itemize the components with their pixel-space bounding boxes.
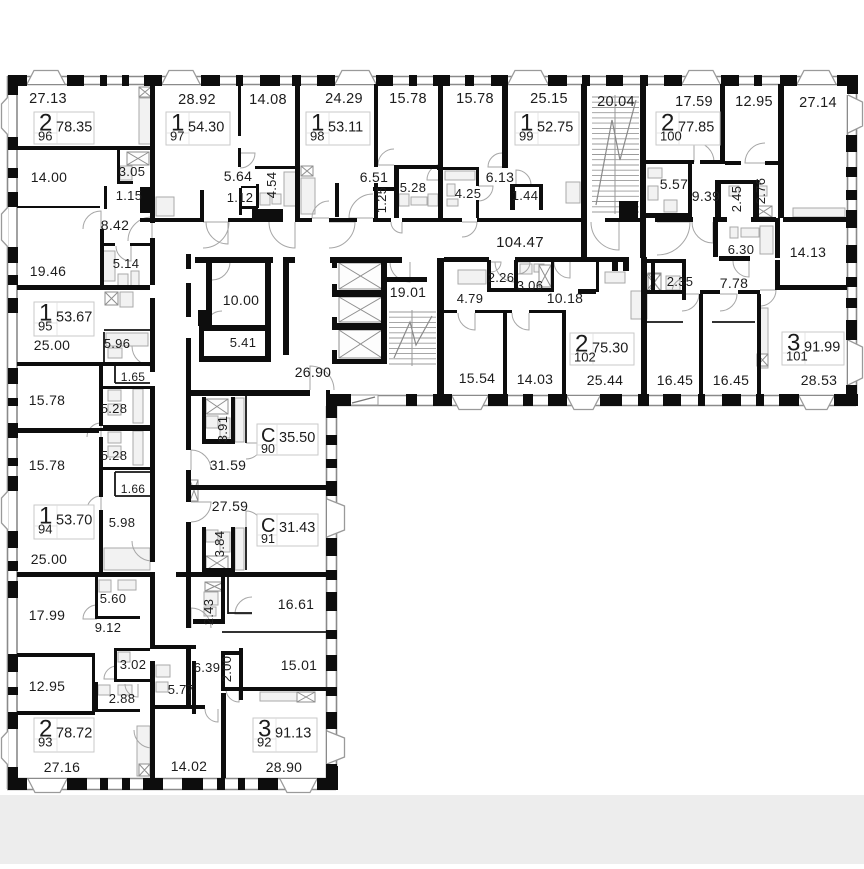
svg-text:52.75: 52.75 xyxy=(537,120,573,136)
svg-text:91.99: 91.99 xyxy=(804,340,840,356)
svg-text:5.28: 5.28 xyxy=(101,401,128,416)
svg-text:17.59: 17.59 xyxy=(675,94,713,110)
svg-text:16.45: 16.45 xyxy=(657,372,694,388)
svg-text:99: 99 xyxy=(519,129,533,144)
svg-text:15.78: 15.78 xyxy=(389,91,427,107)
svg-text:53.11: 53.11 xyxy=(328,120,363,136)
svg-text:4.79: 4.79 xyxy=(457,291,484,306)
svg-text:1.15: 1.15 xyxy=(116,188,143,203)
svg-text:92: 92 xyxy=(257,735,271,750)
svg-text:53.70: 53.70 xyxy=(56,513,92,529)
svg-text:6.51: 6.51 xyxy=(360,169,388,185)
svg-text:2.43: 2.43 xyxy=(201,599,216,626)
svg-text:1.44: 1.44 xyxy=(512,188,539,203)
svg-text:91.13: 91.13 xyxy=(275,726,311,742)
svg-text:16.61: 16.61 xyxy=(278,596,315,612)
svg-text:20.04: 20.04 xyxy=(597,94,635,110)
svg-text:3.05: 3.05 xyxy=(119,164,146,179)
svg-text:4.25: 4.25 xyxy=(455,186,482,201)
svg-text:5.98: 5.98 xyxy=(109,515,136,530)
svg-text:77.85: 77.85 xyxy=(678,120,714,136)
svg-text:28.92: 28.92 xyxy=(178,92,216,108)
svg-text:5.96: 5.96 xyxy=(104,336,131,351)
svg-text:16.45: 16.45 xyxy=(713,372,750,388)
svg-text:1.25: 1.25 xyxy=(374,187,389,214)
svg-text:95: 95 xyxy=(38,319,52,334)
svg-text:25.00: 25.00 xyxy=(34,337,71,353)
svg-text:3.91: 3.91 xyxy=(215,416,230,443)
svg-text:104.47: 104.47 xyxy=(496,234,544,251)
svg-text:91: 91 xyxy=(261,532,275,546)
svg-text:98: 98 xyxy=(310,129,324,144)
svg-text:2.26: 2.26 xyxy=(488,270,515,285)
svg-text:15.01: 15.01 xyxy=(281,657,318,673)
svg-text:12.95: 12.95 xyxy=(735,94,773,110)
svg-text:14.08: 14.08 xyxy=(249,92,287,108)
svg-text:2.45: 2.45 xyxy=(729,186,744,213)
svg-text:14.03: 14.03 xyxy=(517,371,554,387)
svg-text:28.90: 28.90 xyxy=(266,759,303,775)
svg-text:19.46: 19.46 xyxy=(30,263,67,279)
svg-text:6.13: 6.13 xyxy=(486,169,514,185)
svg-text:25.15: 25.15 xyxy=(530,91,568,107)
svg-text:15.54: 15.54 xyxy=(459,370,496,386)
svg-text:9.39: 9.39 xyxy=(692,188,720,204)
svg-text:24.29: 24.29 xyxy=(325,91,363,107)
svg-text:31.43: 31.43 xyxy=(279,520,315,536)
svg-text:27.59: 27.59 xyxy=(212,498,249,514)
svg-text:27.13: 27.13 xyxy=(29,91,67,107)
svg-text:5.14: 5.14 xyxy=(113,256,140,271)
svg-text:15.78: 15.78 xyxy=(29,457,66,473)
svg-text:97: 97 xyxy=(170,129,184,144)
svg-text:1.66: 1.66 xyxy=(121,482,146,496)
svg-text:10.18: 10.18 xyxy=(547,290,584,306)
svg-text:35.50: 35.50 xyxy=(279,430,315,446)
svg-text:101: 101 xyxy=(786,349,808,364)
svg-text:3.06: 3.06 xyxy=(517,278,544,293)
svg-text:2.35: 2.35 xyxy=(667,274,694,289)
svg-text:6.39: 6.39 xyxy=(194,660,221,675)
svg-text:1.12: 1.12 xyxy=(227,190,254,205)
svg-text:54.30: 54.30 xyxy=(188,120,224,136)
svg-text:100: 100 xyxy=(660,129,682,144)
svg-text:15.78: 15.78 xyxy=(29,392,66,408)
svg-text:78.72: 78.72 xyxy=(56,726,92,742)
svg-text:10.00: 10.00 xyxy=(223,292,260,308)
svg-text:2.88: 2.88 xyxy=(109,691,136,706)
svg-text:3.02: 3.02 xyxy=(120,657,147,672)
svg-text:5.28: 5.28 xyxy=(101,448,128,463)
svg-text:5.41: 5.41 xyxy=(230,335,257,350)
svg-text:28.53: 28.53 xyxy=(801,372,838,388)
svg-text:7.78: 7.78 xyxy=(720,275,748,291)
svg-text:96: 96 xyxy=(38,129,52,144)
svg-text:27.14: 27.14 xyxy=(799,95,837,111)
svg-text:19.01: 19.01 xyxy=(390,284,427,300)
svg-text:102: 102 xyxy=(574,350,596,365)
svg-text:15.78: 15.78 xyxy=(456,91,494,107)
svg-text:12.95: 12.95 xyxy=(29,678,66,694)
svg-text:25.00: 25.00 xyxy=(31,551,68,567)
svg-text:93: 93 xyxy=(38,735,52,750)
svg-text:31.59: 31.59 xyxy=(210,457,247,473)
svg-text:25.44: 25.44 xyxy=(587,372,624,388)
svg-text:9.12: 9.12 xyxy=(95,620,122,635)
svg-text:78.35: 78.35 xyxy=(56,120,92,136)
svg-text:14.02: 14.02 xyxy=(171,758,208,774)
svg-text:53.67: 53.67 xyxy=(56,310,92,326)
svg-text:5.28: 5.28 xyxy=(400,180,427,195)
svg-text:3.84: 3.84 xyxy=(212,531,227,558)
svg-text:4.54: 4.54 xyxy=(264,172,279,199)
svg-text:6.30: 6.30 xyxy=(728,242,755,257)
svg-text:90: 90 xyxy=(261,442,275,456)
svg-text:2.76: 2.76 xyxy=(753,178,768,205)
svg-text:8.42: 8.42 xyxy=(101,217,129,233)
svg-text:14.00: 14.00 xyxy=(31,169,68,185)
svg-text:5.77: 5.77 xyxy=(168,682,195,697)
svg-text:14.13: 14.13 xyxy=(790,244,827,260)
svg-text:5.60: 5.60 xyxy=(100,591,127,606)
svg-text:2.00: 2.00 xyxy=(219,656,234,683)
svg-text:94: 94 xyxy=(38,522,52,537)
svg-text:26.90: 26.90 xyxy=(295,364,332,380)
svg-text:5.57: 5.57 xyxy=(660,176,688,192)
svg-text:5.64: 5.64 xyxy=(224,168,252,184)
svg-text:75.30: 75.30 xyxy=(592,341,628,357)
svg-text:27.16: 27.16 xyxy=(44,759,81,775)
svg-text:1.65: 1.65 xyxy=(121,370,146,384)
svg-text:17.99: 17.99 xyxy=(29,607,66,623)
